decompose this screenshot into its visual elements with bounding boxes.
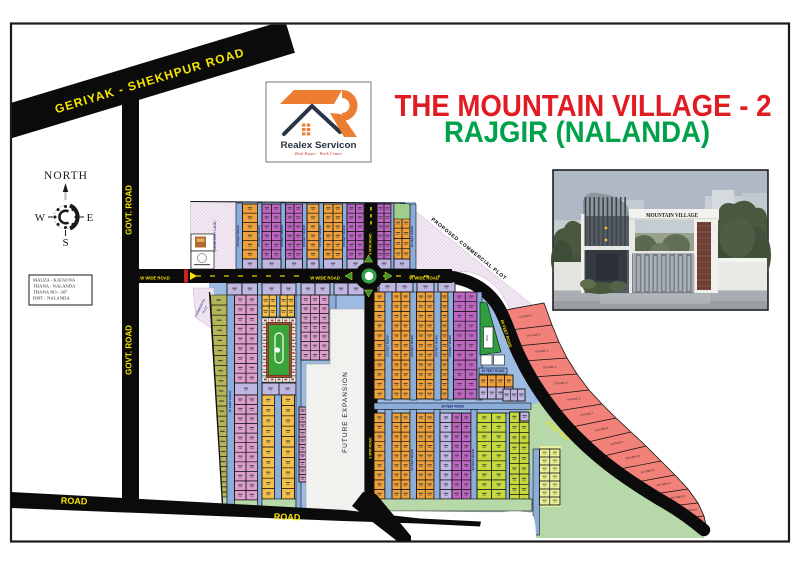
svg-text:20 FEET ROAD: 20 FEET ROAD [410, 448, 414, 470]
svg-text:20 FEET ROAD: 20 FEET ROAD [228, 390, 232, 412]
svg-text:THANA NO.- 307: THANA NO.- 307 [33, 290, 68, 295]
svg-text:GOVT. ROAD: GOVT. ROAD [125, 185, 134, 235]
svg-text:DIST - NALANDA: DIST - NALANDA [33, 296, 70, 301]
svg-text:20 FEET ROAD: 20 FEET ROAD [257, 224, 261, 246]
svg-text:E: E [87, 212, 94, 224]
svg-text:ROAD: ROAD [274, 512, 301, 523]
svg-text:W WIDE ROAD: W WIDE ROAD [310, 276, 340, 281]
svg-text:FUTURE EXPANSION: FUTURE EXPANSION [342, 371, 349, 453]
svg-text:9 MTR ROAD: 9 MTR ROAD [369, 437, 373, 459]
svg-text:Real Estate - Work Centre: Real Estate - Work Centre [294, 151, 342, 156]
svg-text:THANA - NALANDA: THANA - NALANDA [33, 284, 76, 289]
svg-text:20 FEET ROAD: 20 FEET ROAD [386, 334, 390, 356]
svg-text:20 FEET ROAD: 20 FEET ROAD [448, 334, 452, 356]
svg-text:20 FEET ROAD: 20 FEET ROAD [318, 224, 322, 246]
svg-text:MAUZA - KATAUNA: MAUZA - KATAUNA [33, 278, 76, 283]
svg-text:PARK: PARK [486, 334, 489, 341]
svg-text:GOVT. ROAD: GOVT. ROAD [125, 325, 134, 375]
svg-text:20 FEET ROAD: 20 FEET ROAD [435, 334, 439, 356]
svg-text:20 FEET ROAD: 20 FEET ROAD [471, 448, 475, 470]
svg-text:MOUNTAIN VILLAGE: MOUNTAIN VILLAGE [646, 213, 698, 219]
svg-text:30 FEET ROAD: 30 FEET ROAD [441, 404, 465, 408]
svg-text:20 FEET ROAD: 20 FEET ROAD [410, 225, 414, 247]
svg-text:W: W [35, 212, 46, 224]
svg-text:20 FEET ROAD: 20 FEET ROAD [342, 224, 346, 246]
svg-text:W WIDE ROAD: W WIDE ROAD [409, 276, 439, 281]
svg-text:20 FEET ROAD: 20 FEET ROAD [236, 224, 240, 246]
svg-text:RAJGIR (NALANDA): RAJGIR (NALANDA) [444, 116, 710, 149]
svg-text:20 FEET ROAD: 20 FEET ROAD [482, 369, 506, 373]
svg-text:S: S [62, 237, 68, 249]
svg-text:Realex Servicon: Realex Servicon [281, 140, 357, 151]
svg-text:9 MTR ROAD: 9 MTR ROAD [369, 233, 373, 255]
svg-text:20 FEET ROAD: 20 FEET ROAD [302, 224, 306, 246]
svg-text:20 FEET ROAD: 20 FEET ROAD [410, 334, 414, 356]
svg-text:ROAD: ROAD [61, 496, 88, 507]
svg-text:20 FEET ROAD: 20 FEET ROAD [280, 224, 284, 246]
svg-text:NORTH: NORTH [44, 170, 88, 182]
svg-text:W WIDE ROAD: W WIDE ROAD [140, 276, 170, 281]
